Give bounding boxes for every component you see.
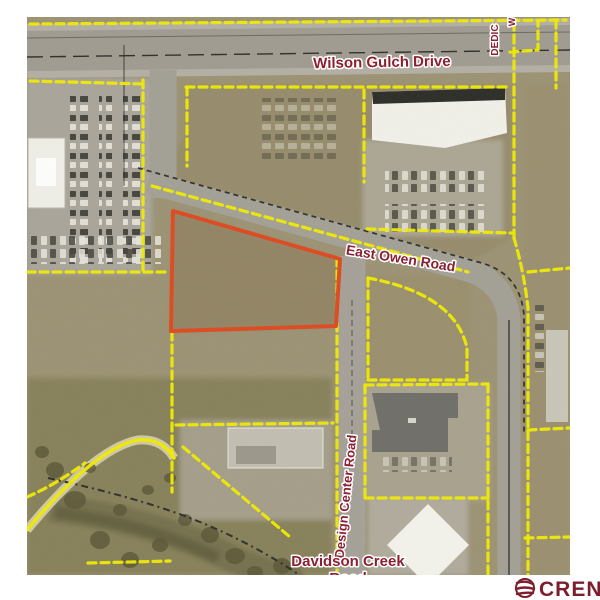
road-label-wilson-gulch-drive: Wilson Gulch Drive [313,53,451,72]
photo-grain-overlay [27,17,570,575]
label-dedication-partial-2: W [507,17,517,26]
listing-photo-page: Wilson Gulch Drive East Owen Road Design… [0,0,600,600]
cren-swirl-icon [516,579,534,597]
cren-logo-text: CREN [539,578,600,600]
road-label-davidson-creek: Davidson Creek [291,553,405,570]
label-dedication-partial: DEDIC [490,24,501,55]
road-label-davidson-creek-road: Road [329,570,367,587]
aerial-parcel-map[interactable]: Wilson Gulch Drive East Owen Road Design… [0,0,600,600]
cren-logo: CREN [516,578,600,600]
